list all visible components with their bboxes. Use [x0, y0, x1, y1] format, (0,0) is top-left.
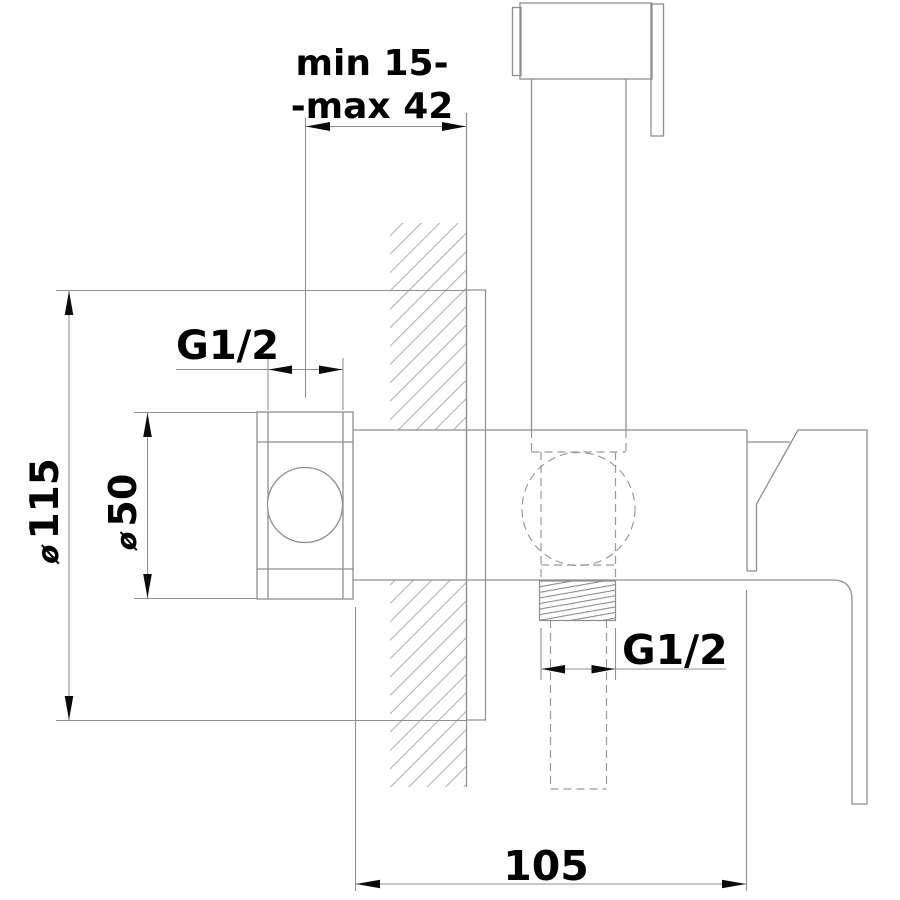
body-length-label: 105 [476, 842, 616, 890]
dim-valve-diameter [134, 413, 257, 599]
arrow-right [592, 665, 616, 674]
thread-top-label: G1/2 [176, 323, 279, 369]
depth-range-line1: min 15- [287, 42, 457, 85]
threaded-nipple [540, 581, 616, 621]
wall-hatch-section [390, 113, 467, 787]
arrow-down [65, 696, 74, 720]
wall-hatch-lower [390, 580, 467, 787]
wall-plate-edge [467, 290, 486, 720]
diameter-symbol: ø [112, 532, 143, 551]
nipple-thread [540, 581, 616, 621]
lever-neck [757, 430, 799, 571]
lever-handle [755, 430, 867, 804]
hand-shower-head [513, 3, 664, 430]
plate-diameter-label: ø115 [22, 421, 70, 601]
thread-bottom-label: G1/2 [622, 626, 728, 674]
depth-range-label: min 15- -max 42 [287, 42, 457, 128]
stop-valve [257, 412, 353, 599]
arrow-up [143, 413, 152, 437]
shower-head-body [520, 3, 652, 79]
valve-diameter-label: ø50 [99, 442, 147, 582]
lever-outline [755, 430, 867, 804]
diameter-symbol: ø [32, 545, 65, 564]
arrow-right [319, 366, 343, 375]
arrow-left [542, 665, 566, 674]
holder-bar [651, 4, 664, 136]
hidden-ball-joint [522, 453, 635, 566]
arrow-right [722, 880, 746, 889]
arrow-up [65, 291, 74, 315]
valve-knob [268, 468, 343, 543]
wall-hatch-upper [390, 223, 467, 430]
technical-drawing-canvas: min 15- -max 42 G1/2 ø115 ø50 G1/2 105 [0, 0, 900, 900]
arrow-left [356, 880, 380, 889]
depth-range-line2: -max 42 [287, 85, 457, 128]
wall-plate [467, 290, 486, 720]
